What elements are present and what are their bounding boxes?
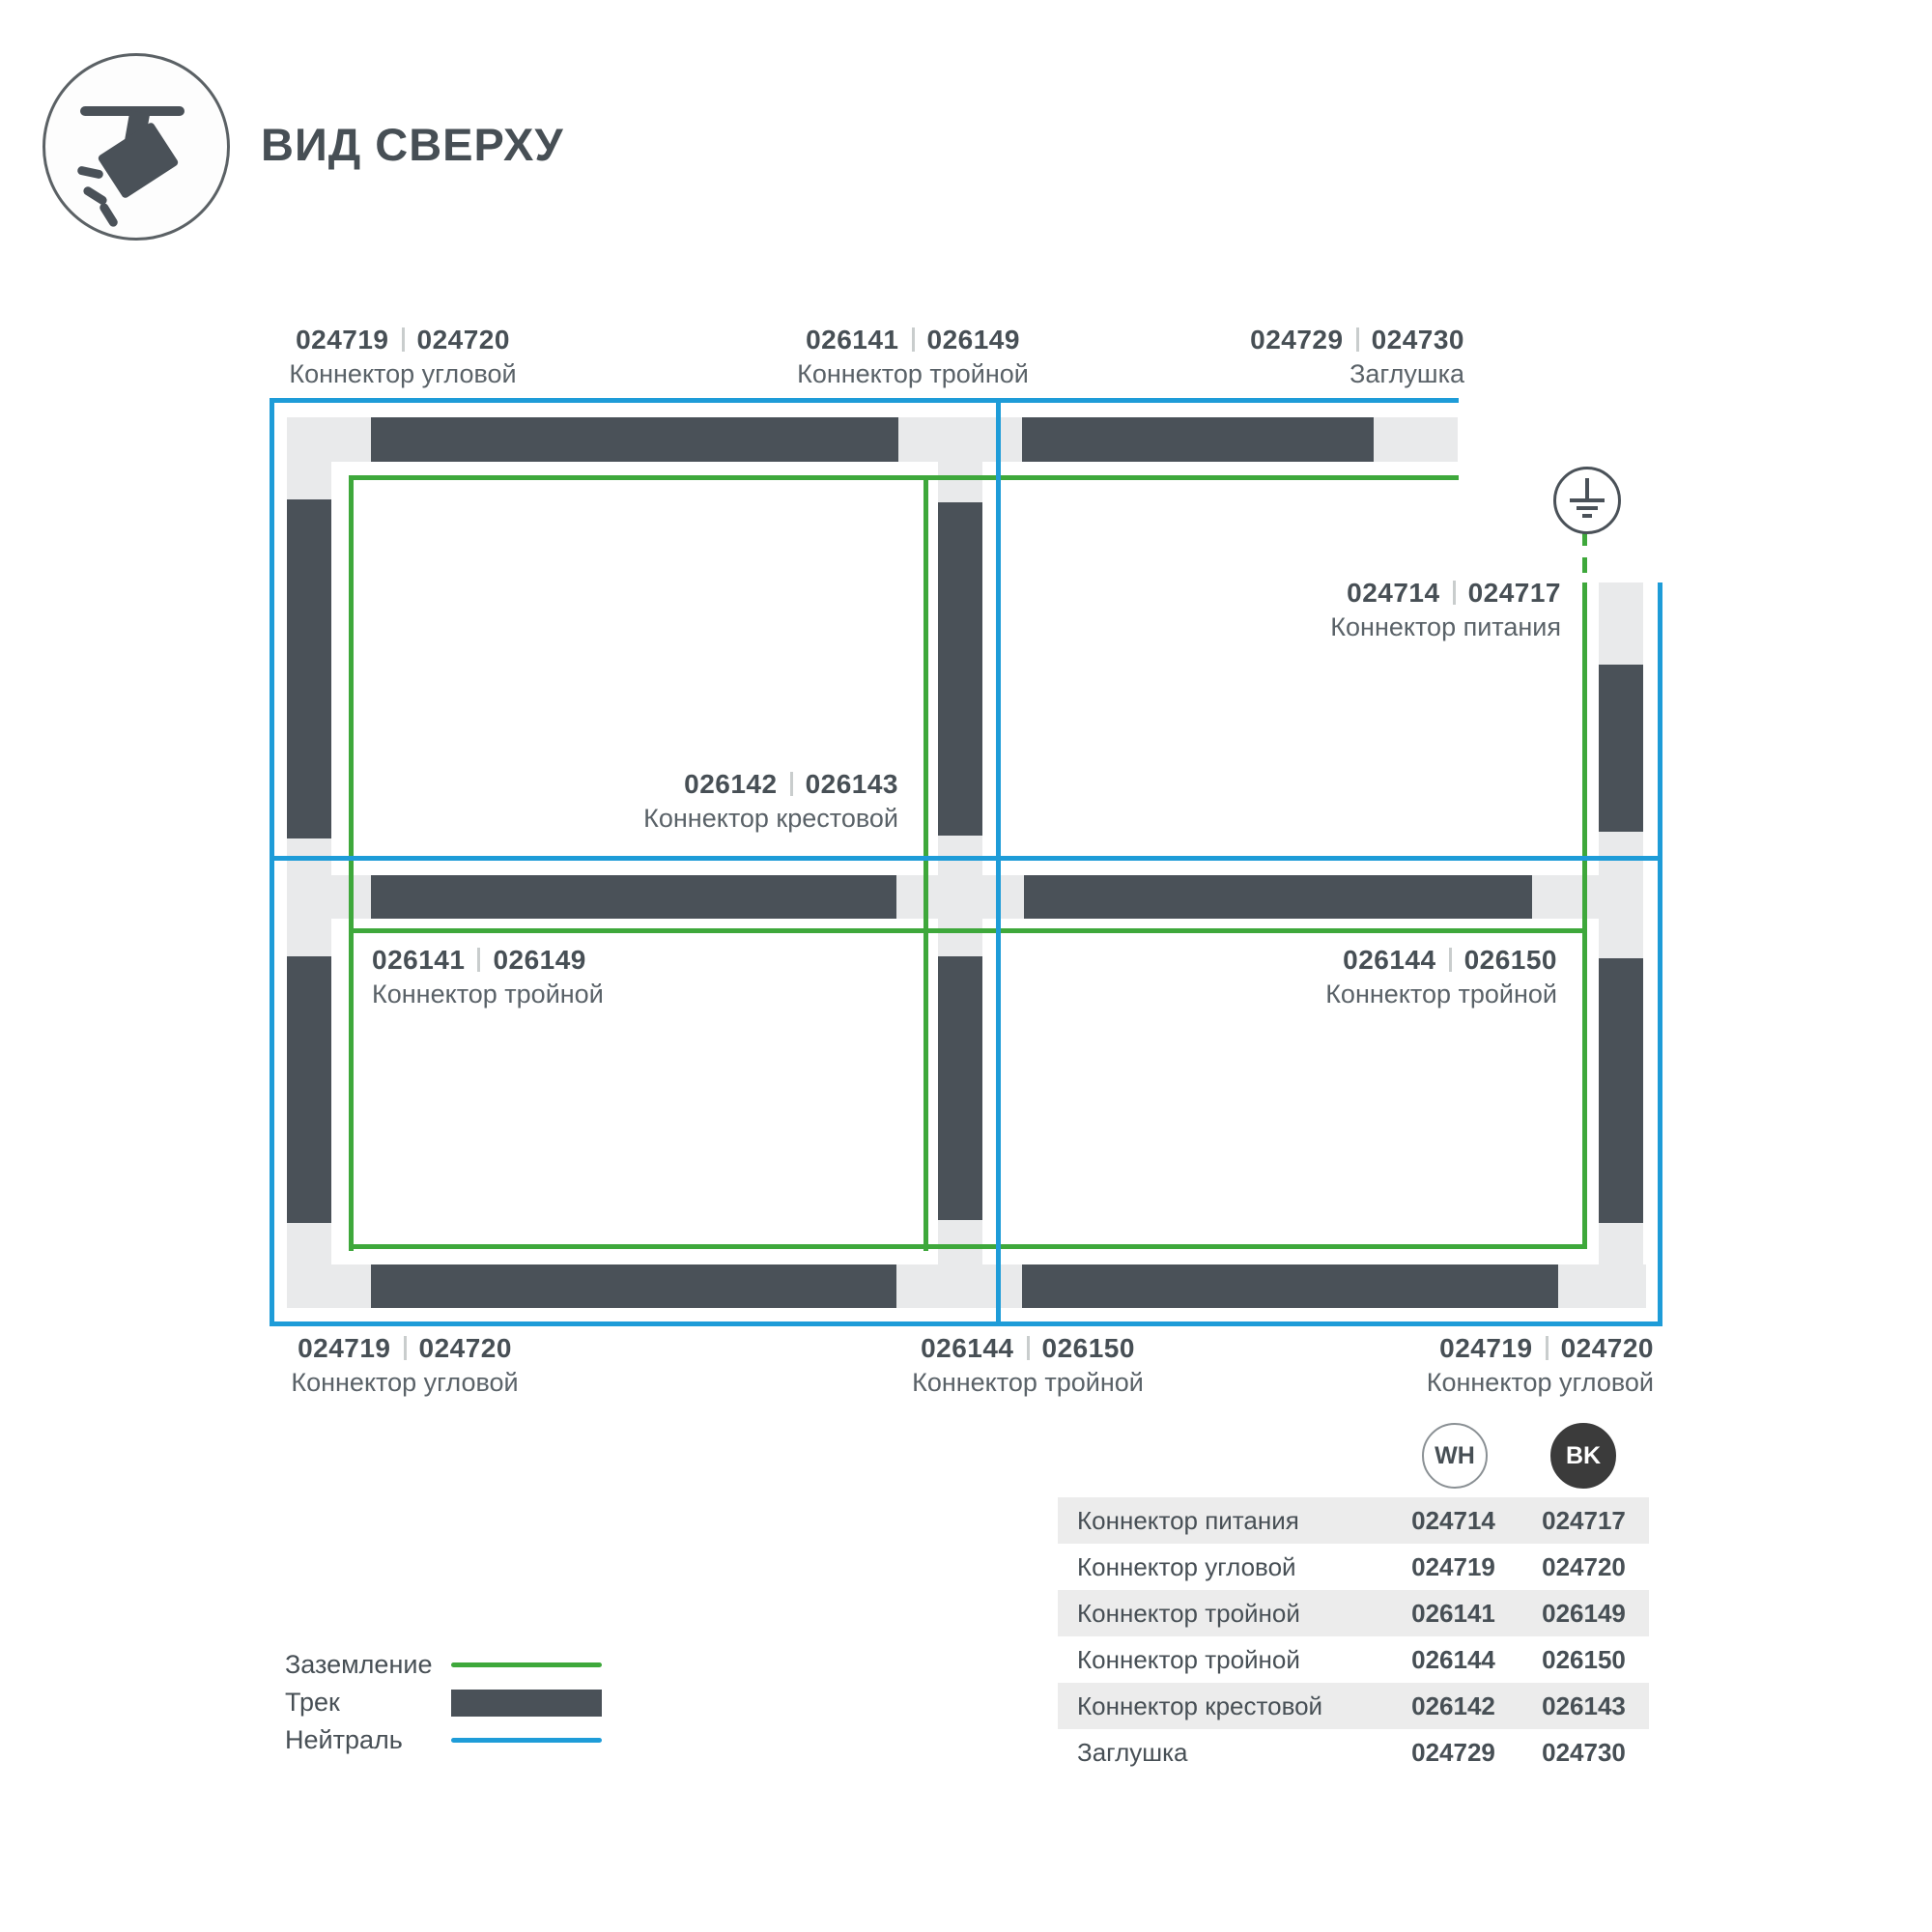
icon-spotlight-head	[97, 122, 179, 200]
track-segment	[1022, 417, 1374, 462]
track-segment	[371, 417, 898, 462]
neutral-line-right	[1658, 582, 1662, 1326]
part-label-power-connector: 024714024717 Коннектор питания	[1330, 578, 1561, 641]
color-badge-black: BK	[1550, 1423, 1616, 1489]
track-light-icon	[43, 53, 230, 241]
neutral-line-top	[270, 398, 1459, 403]
part-number-wh: 024719	[296, 325, 388, 355]
part-number-wh: 024729	[1250, 325, 1343, 355]
separator	[1449, 948, 1452, 972]
part-number-wh: 026142	[684, 769, 777, 799]
part-number-wh: 024719	[1439, 1333, 1532, 1363]
table-row: Коннектор питания 024714 024717	[1058, 1497, 1649, 1544]
table-row: Коннектор крестовой 026142 026143	[1058, 1683, 1649, 1729]
separator	[1356, 327, 1359, 352]
part-label-corner-connector-bottom-right: 024719024720 Коннектор угловой	[1427, 1333, 1654, 1397]
track-segment	[938, 956, 982, 1220]
part-number-bk: 024717	[1468, 578, 1561, 608]
part-name: Коннектор тройной	[908, 1368, 1148, 1397]
table-row: Коннектор угловой 024719 024720	[1058, 1544, 1649, 1590]
part-number-wh: 026141	[372, 945, 465, 975]
table-part-number-bk: 024730	[1519, 1738, 1649, 1768]
part-number-bk: 026149	[927, 325, 1020, 355]
parts-table: Коннектор питания 024714 024717 Коннекто…	[1058, 1497, 1649, 1776]
legend-label: Трек	[285, 1688, 451, 1718]
separator	[404, 1336, 407, 1360]
part-name: Коннектор угловой	[285, 1368, 525, 1397]
ground-symbol-icon	[1553, 467, 1621, 534]
part-name: Коннектор угловой	[283, 359, 523, 388]
track-segment	[287, 956, 331, 1223]
part-name: Коннектор угловой	[1427, 1368, 1654, 1397]
table-part-name: Коннектор тройной	[1058, 1599, 1388, 1629]
part-number-wh: 026141	[806, 325, 898, 355]
table-part-name: Коннектор тройной	[1058, 1645, 1388, 1675]
table-row: Коннектор тройной 026141 026149	[1058, 1590, 1649, 1636]
table-row: Коннектор тройной 026144 026150	[1058, 1636, 1649, 1683]
separator	[912, 327, 915, 352]
part-label-triple-connector-top: 026141026149 Коннектор тройной	[793, 325, 1033, 388]
table-part-number-bk: 026149	[1519, 1599, 1649, 1629]
neutral-line-left	[270, 398, 274, 1326]
legend-item-track: Трек	[285, 1684, 602, 1721]
neutral-line-bottom	[270, 1321, 1662, 1326]
part-number-bk: 026143	[806, 769, 898, 799]
legend-item-ground: Заземление	[285, 1646, 602, 1684]
part-number-bk: 026149	[493, 945, 585, 975]
table-part-number-wh: 024714	[1388, 1506, 1519, 1536]
part-name: Заглушка	[1250, 359, 1464, 388]
neutral-line-middle-horizontal	[270, 856, 1662, 861]
ground-line-right	[1582, 582, 1587, 1249]
table-part-name: Коннектор крестовой	[1058, 1691, 1388, 1721]
table-part-number-bk: 026150	[1519, 1645, 1649, 1675]
table-part-number-wh: 026142	[1388, 1691, 1519, 1721]
part-label-triple-connector-middle-left: 026141026149 Коннектор тройной	[372, 945, 604, 1009]
legend-item-neutral: Нейтраль	[285, 1721, 602, 1759]
table-part-name: Заглушка	[1058, 1738, 1388, 1768]
ground-feed-dashed-line	[1582, 530, 1587, 582]
part-name: Коннектор питания	[1330, 612, 1561, 641]
ground-line-bottom	[349, 1244, 1587, 1249]
separator	[1453, 581, 1456, 605]
part-name: Коннектор крестовой	[643, 804, 898, 833]
part-name: Коннектор тройной	[1325, 980, 1557, 1009]
part-number-bk: 024730	[1372, 325, 1464, 355]
part-label-cross-connector: 026142026143 Коннектор крестовой	[643, 769, 898, 833]
part-label-end-cap: 024729024730 Заглушка	[1250, 325, 1464, 388]
track-segment	[1024, 875, 1532, 919]
separator	[477, 948, 480, 972]
track-segment	[287, 499, 331, 838]
part-number-wh: 024719	[298, 1333, 390, 1363]
ground-line-middle-horizontal	[349, 928, 1587, 933]
legend-label: Нейтраль	[285, 1725, 451, 1755]
part-number-wh: 024714	[1347, 578, 1439, 608]
table-part-number-wh: 026141	[1388, 1599, 1519, 1629]
page-title: ВИД СВЕРХУ	[261, 118, 564, 171]
table-part-number-bk: 024717	[1519, 1506, 1649, 1536]
table-part-number-bk: 026143	[1519, 1691, 1649, 1721]
icon-light-ray	[99, 202, 120, 229]
separator	[402, 327, 405, 352]
separator	[1546, 1336, 1548, 1360]
part-number-wh: 026144	[1343, 945, 1435, 975]
part-number-wh: 026144	[921, 1333, 1013, 1363]
table-part-number-wh: 024719	[1388, 1552, 1519, 1582]
part-number-bk: 026150	[1464, 945, 1557, 975]
track-segment	[371, 1264, 896, 1308]
table-part-number-bk: 024720	[1519, 1552, 1649, 1582]
part-number-bk: 024720	[419, 1333, 512, 1363]
ground-line-middle-vertical	[923, 475, 928, 1251]
part-number-bk: 024720	[417, 325, 510, 355]
track-bar-swatch	[451, 1690, 602, 1717]
ground-line-left	[349, 475, 354, 1251]
track-segment	[1022, 1264, 1558, 1308]
part-number-bk: 024720	[1561, 1333, 1654, 1363]
part-name: Коннектор тройной	[372, 980, 604, 1009]
track-segment	[371, 875, 896, 919]
track-segment	[1599, 665, 1643, 832]
part-name: Коннектор тройной	[793, 359, 1033, 388]
table-part-name: Коннектор угловой	[1058, 1552, 1388, 1582]
part-number-bk: 026150	[1042, 1333, 1135, 1363]
table-part-number-wh: 026144	[1388, 1645, 1519, 1675]
part-label-triple-connector-middle-right: 026144026150 Коннектор тройной	[1325, 945, 1557, 1009]
table-row: Заглушка 024729 024730	[1058, 1729, 1649, 1776]
ground-line-top	[349, 475, 1459, 480]
separator	[1027, 1336, 1030, 1360]
ground-line-swatch	[451, 1662, 602, 1667]
table-part-number-wh: 024729	[1388, 1738, 1519, 1768]
legend-label: Заземление	[285, 1650, 451, 1680]
part-label-corner-connector-bottom-left: 024719024720 Коннектор угловой	[285, 1333, 525, 1397]
neutral-line-middle-vertical	[996, 398, 1001, 1326]
page: ВИД СВЕРХУ 024719024720 Коннектор углово…	[0, 0, 1932, 1932]
track-segment	[1599, 958, 1643, 1223]
part-label-corner-connector-top-left: 024719024720 Коннектор угловой	[283, 325, 523, 388]
track-segment	[938, 502, 982, 836]
part-label-triple-connector-bottom: 026144026150 Коннектор тройной	[908, 1333, 1148, 1397]
legend: Заземление Трек Нейтраль	[285, 1646, 602, 1759]
separator	[790, 772, 793, 796]
color-badge-white: WH	[1422, 1423, 1488, 1489]
neutral-line-swatch	[451, 1738, 602, 1743]
icon-light-ray	[76, 165, 103, 179]
table-part-name: Коннектор питания	[1058, 1506, 1388, 1536]
